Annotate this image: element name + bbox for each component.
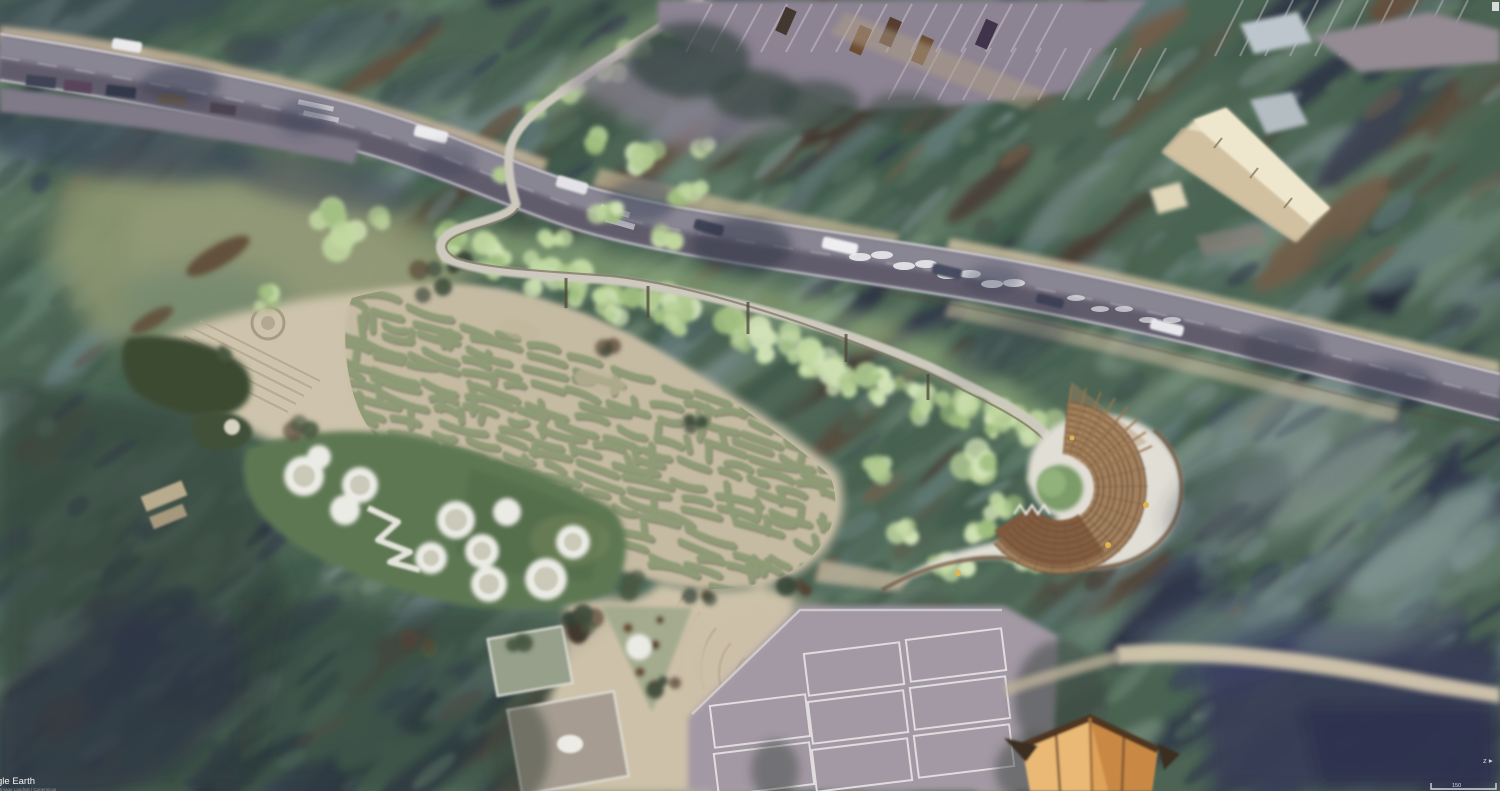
svg-text:gle Earth: gle Earth — [0, 776, 35, 787]
svg-text:Image Landsat / Copernicus: Image Landsat / Copernicus — [0, 787, 57, 791]
svg-text:z ▸: z ▸ — [1483, 756, 1493, 765]
svg-text:150: 150 — [1452, 783, 1461, 789]
